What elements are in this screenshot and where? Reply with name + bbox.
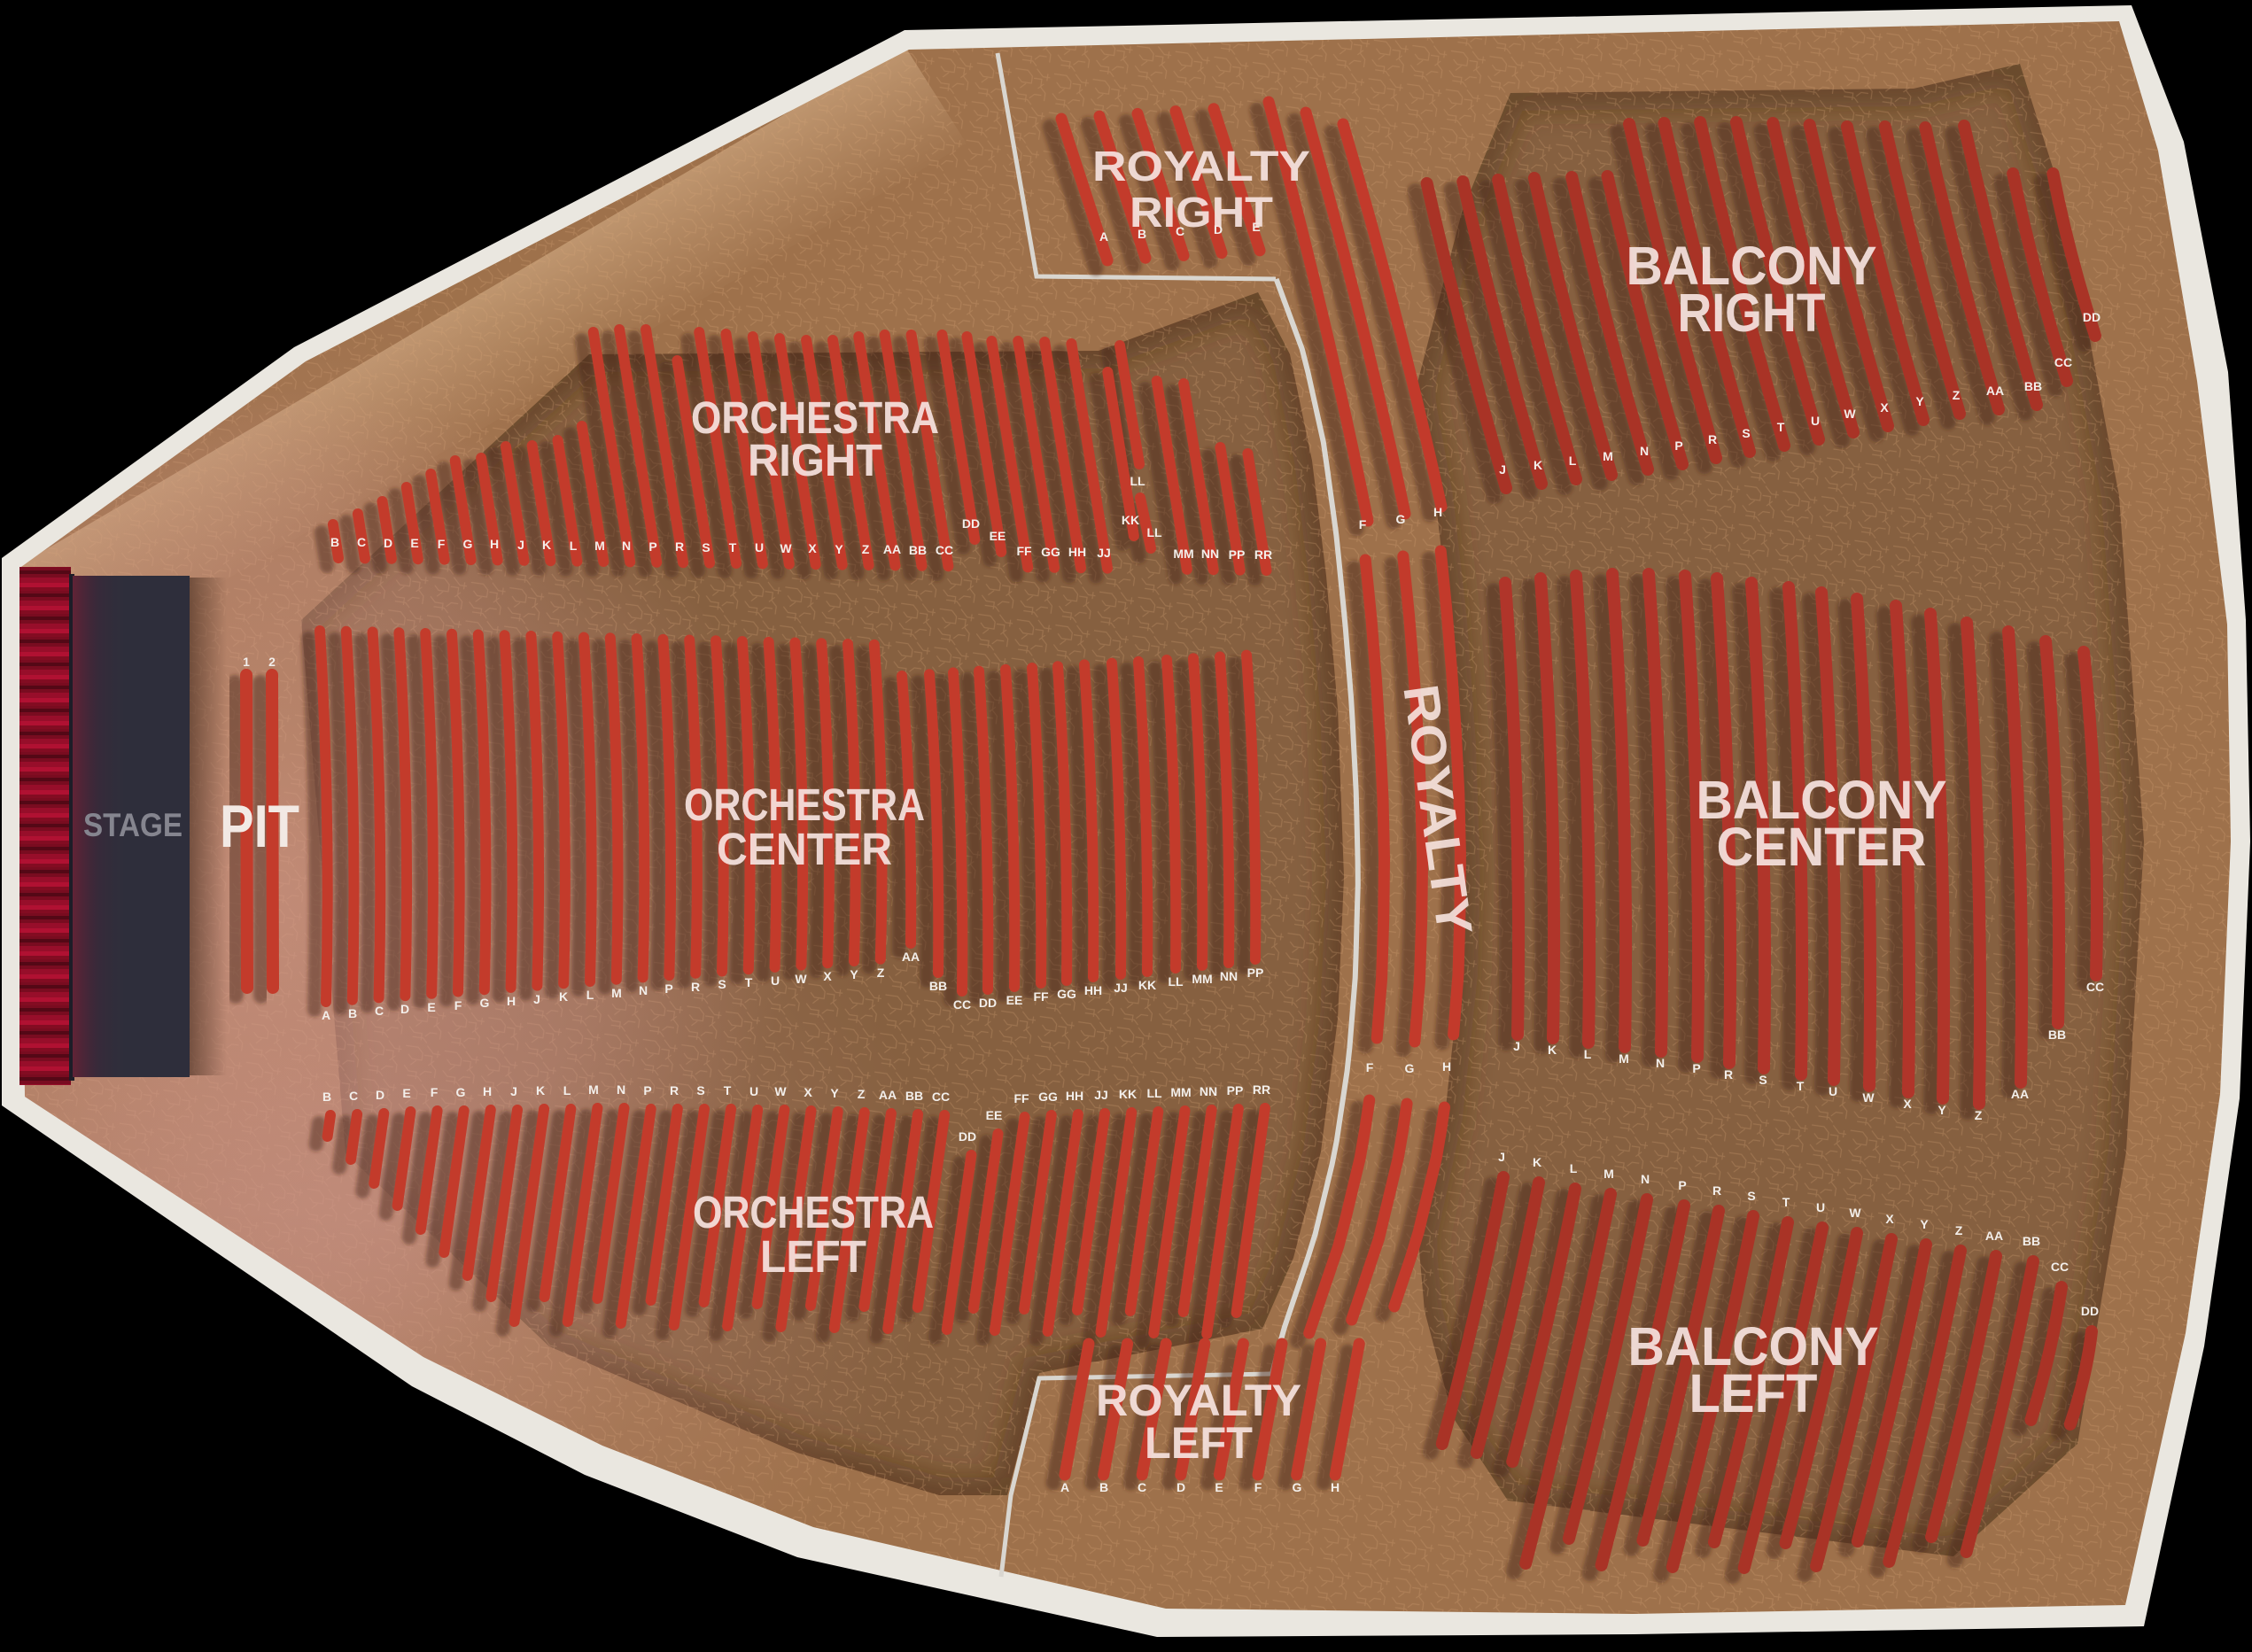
svg-text:ORCHESTRA: ORCHESTRA (693, 1187, 934, 1237)
svg-text:N: N (617, 1082, 625, 1097)
svg-text:RIGHT: RIGHT (1678, 283, 1826, 343)
svg-text:N: N (1641, 1172, 1650, 1186)
svg-text:P: P (1678, 1178, 1686, 1192)
svg-text:G: G (1396, 512, 1406, 526)
svg-text:KK: KK (1122, 513, 1139, 527)
svg-text:T: T (729, 540, 737, 555)
svg-text:R: R (691, 980, 700, 994)
svg-text:FF: FF (1016, 544, 1032, 558)
svg-text:T: T (1782, 1195, 1790, 1209)
svg-text:W: W (1862, 1090, 1875, 1105)
svg-text:K: K (559, 989, 568, 1004)
svg-text:E: E (427, 1000, 435, 1014)
svg-text:A: A (1099, 229, 1108, 244)
svg-text:DD: DD (2081, 1304, 2099, 1318)
svg-text:B: B (330, 535, 339, 549)
svg-text:R: R (675, 539, 684, 554)
svg-text:Z: Z (877, 966, 885, 980)
svg-text:X: X (1880, 400, 1889, 415)
svg-text:F: F (1254, 1480, 1262, 1494)
svg-text:J: J (1513, 1039, 1520, 1053)
svg-text:LEFT: LEFT (1145, 1418, 1253, 1468)
svg-text:T: T (745, 975, 753, 989)
svg-text:GG: GG (1057, 987, 1076, 1001)
svg-text:DD: DD (2083, 310, 2101, 324)
svg-text:J: J (533, 992, 540, 1006)
svg-text:BB: BB (2048, 1028, 2066, 1042)
svg-text:CENTER: CENTER (717, 824, 892, 874)
svg-text:BB: BB (2024, 379, 2042, 393)
svg-text:E: E (410, 536, 418, 550)
svg-text:X: X (804, 1085, 812, 1099)
svg-text:CENTER: CENTER (1717, 817, 1927, 877)
svg-text:B: B (322, 1090, 331, 1104)
svg-text:U: U (755, 540, 764, 555)
svg-text:B: B (348, 1006, 357, 1020)
svg-text:W: W (774, 1084, 787, 1098)
svg-text:MM: MM (1192, 972, 1212, 986)
svg-text:M: M (588, 1082, 599, 1097)
svg-text:H: H (490, 537, 499, 551)
svg-text:R: R (1712, 1183, 1721, 1198)
svg-text:P: P (1692, 1061, 1700, 1075)
svg-text:H: H (1331, 1480, 1340, 1494)
svg-text:H: H (1433, 505, 1442, 519)
svg-text:S: S (718, 977, 726, 991)
svg-text:R: R (670, 1083, 679, 1097)
svg-text:RR: RR (1254, 547, 1272, 562)
svg-text:Z: Z (858, 1087, 866, 1101)
svg-text:U: U (1811, 414, 1820, 428)
svg-text:DD: DD (979, 996, 997, 1010)
svg-text:U: U (749, 1084, 758, 1098)
svg-text:P: P (664, 981, 672, 996)
svg-text:G: G (1405, 1061, 1415, 1075)
svg-text:PIT: PIT (220, 793, 299, 860)
svg-text:RR: RR (1253, 1082, 1270, 1097)
svg-text:U: U (771, 973, 780, 988)
svg-text:P: P (643, 1083, 651, 1097)
svg-text:K: K (1534, 458, 1542, 472)
svg-text:KK: KK (1119, 1087, 1137, 1101)
svg-text:2: 2 (268, 655, 276, 669)
svg-text:AA: AA (1986, 384, 2004, 398)
svg-text:EE: EE (990, 529, 1006, 543)
svg-text:AA: AA (1985, 1229, 2003, 1243)
svg-text:G: G (480, 996, 490, 1010)
svg-text:B: B (1099, 1480, 1108, 1494)
svg-text:L: L (1570, 1161, 1578, 1175)
svg-text:PP: PP (1247, 966, 1264, 980)
svg-text:F: F (1366, 1060, 1374, 1074)
svg-text:AA: AA (902, 950, 920, 964)
svg-text:NN: NN (1201, 547, 1219, 561)
svg-text:A: A (1060, 1480, 1069, 1494)
svg-text:BB: BB (929, 979, 947, 993)
svg-text:HH: HH (1066, 1089, 1083, 1103)
svg-text:D: D (400, 1002, 409, 1016)
svg-text:J: J (1498, 1150, 1505, 1164)
svg-text:PP: PP (1227, 1083, 1244, 1097)
svg-text:D: D (376, 1088, 384, 1102)
svg-text:P: P (1674, 438, 1682, 453)
svg-text:K: K (542, 538, 551, 552)
svg-text:Y: Y (850, 967, 858, 981)
svg-text:AA: AA (2011, 1087, 2029, 1101)
svg-text:H: H (507, 994, 516, 1008)
svg-text:N: N (622, 539, 631, 553)
svg-text:J: J (1499, 462, 1506, 477)
svg-text:JJ: JJ (1114, 981, 1128, 995)
svg-text:HH: HH (1068, 545, 1086, 559)
svg-text:L: L (1569, 454, 1577, 468)
svg-text:M: M (1619, 1051, 1629, 1066)
svg-text:E: E (1215, 1480, 1223, 1494)
svg-text:C: C (375, 1004, 384, 1018)
svg-text:F: F (431, 1085, 439, 1099)
svg-text:T: T (1777, 420, 1785, 434)
svg-text:CC: CC (2051, 1260, 2069, 1274)
svg-text:M: M (1604, 1167, 1614, 1181)
svg-text:AA: AA (879, 1088, 897, 1102)
svg-text:LL: LL (1168, 974, 1184, 989)
svg-text:GG: GG (1041, 545, 1060, 559)
svg-text:CC: CC (2054, 355, 2072, 369)
svg-text:M: M (1603, 449, 1613, 463)
svg-text:P: P (648, 539, 656, 554)
svg-text:EE: EE (1006, 993, 1023, 1007)
svg-text:S: S (1747, 1189, 1755, 1203)
svg-text:KK: KK (1138, 978, 1156, 992)
svg-text:H: H (483, 1084, 492, 1098)
svg-text:Y: Y (835, 542, 843, 556)
svg-text:NN: NN (1200, 1084, 1217, 1098)
svg-text:J: J (517, 538, 524, 552)
svg-text:F: F (454, 998, 462, 1012)
svg-text:CC: CC (953, 997, 971, 1012)
svg-text:ORCHESTRA: ORCHESTRA (684, 779, 925, 830)
svg-text:ROYALTY: ROYALTY (1092, 143, 1310, 190)
svg-text:LEFT: LEFT (760, 1231, 866, 1282)
svg-text:JJ: JJ (1097, 546, 1111, 560)
svg-text:N: N (1656, 1056, 1665, 1070)
svg-text:N: N (1640, 444, 1649, 458)
svg-text:RIGHT: RIGHT (748, 435, 882, 485)
svg-text:R: R (1724, 1067, 1733, 1082)
svg-text:E: E (402, 1086, 410, 1100)
svg-text:HH: HH (1084, 983, 1102, 997)
svg-text:LEFT: LEFT (1689, 1363, 1818, 1423)
svg-text:G: G (456, 1085, 466, 1099)
svg-text:U: U (1829, 1084, 1837, 1098)
svg-text:X: X (1903, 1097, 1912, 1111)
svg-text:L: L (1584, 1047, 1592, 1061)
svg-text:Y: Y (1937, 1103, 1946, 1117)
svg-text:LL: LL (1146, 525, 1162, 539)
svg-text:MM: MM (1170, 1085, 1191, 1099)
svg-text:MM: MM (1173, 547, 1193, 561)
svg-text:RIGHT: RIGHT (1130, 190, 1273, 237)
svg-text:F: F (438, 537, 446, 551)
svg-text:W: W (795, 972, 807, 986)
svg-text:U: U (1816, 1200, 1825, 1214)
svg-text:LL: LL (1130, 474, 1145, 488)
svg-text:X: X (808, 541, 817, 555)
svg-text:FF: FF (1033, 989, 1049, 1004)
svg-text:PP: PP (1229, 547, 1246, 562)
svg-text:D: D (384, 536, 392, 550)
svg-text:Y: Y (1920, 1217, 1929, 1231)
svg-text:G: G (1293, 1480, 1302, 1494)
svg-text:Z: Z (1975, 1108, 1983, 1122)
svg-text:W: W (780, 541, 792, 555)
svg-text:FF: FF (1013, 1091, 1029, 1105)
svg-text:CC: CC (2086, 980, 2104, 994)
svg-text:Y: Y (830, 1086, 839, 1100)
svg-text:C: C (357, 535, 366, 549)
svg-text:DD: DD (959, 1129, 976, 1144)
svg-text:BB: BB (2023, 1234, 2040, 1248)
svg-text:S: S (1742, 426, 1750, 440)
svg-text:M: M (611, 986, 622, 1000)
svg-text:AA: AA (883, 542, 901, 556)
svg-text:STAGE: STAGE (83, 807, 182, 843)
svg-text:S: S (1759, 1073, 1767, 1087)
svg-text:L: L (570, 539, 578, 553)
svg-text:R: R (1708, 432, 1717, 446)
svg-text:K: K (536, 1083, 545, 1097)
svg-text:F: F (1359, 517, 1367, 531)
svg-text:S: S (696, 1083, 704, 1097)
svg-text:K: K (1533, 1155, 1541, 1169)
svg-text:Z: Z (1955, 1223, 1963, 1237)
svg-text:Z: Z (1953, 388, 1961, 402)
svg-text:NN: NN (1220, 969, 1238, 983)
svg-text:X: X (1885, 1212, 1894, 1226)
svg-text:N: N (639, 983, 648, 997)
svg-text:X: X (823, 969, 832, 983)
svg-text:BB: BB (909, 543, 927, 557)
svg-text:W: W (1849, 1206, 1861, 1220)
svg-text:C: C (349, 1089, 358, 1103)
svg-text:K: K (1548, 1043, 1557, 1057)
svg-text:Z: Z (862, 542, 870, 556)
svg-text:BB: BB (905, 1089, 923, 1103)
svg-text:L: L (586, 988, 594, 1002)
svg-text:DD: DD (962, 516, 980, 531)
svg-text:T: T (724, 1083, 732, 1097)
svg-text:LL: LL (1146, 1086, 1162, 1100)
svg-text:G: G (463, 537, 473, 551)
svg-text:H: H (1442, 1059, 1451, 1074)
svg-text:S: S (702, 540, 710, 555)
svg-text:W: W (1844, 407, 1856, 421)
svg-text:CC: CC (936, 543, 953, 557)
svg-text:Y: Y (1915, 394, 1924, 408)
svg-text:EE: EE (986, 1108, 1003, 1122)
svg-text:L: L (563, 1083, 571, 1097)
svg-text:A: A (322, 1008, 330, 1022)
svg-text:JJ: JJ (1094, 1088, 1108, 1102)
svg-text:M: M (594, 539, 605, 553)
svg-text:1: 1 (243, 655, 250, 669)
svg-text:J: J (510, 1084, 517, 1098)
svg-text:CC: CC (932, 1090, 950, 1104)
svg-text:GG: GG (1038, 1090, 1058, 1104)
svg-text:T: T (1797, 1079, 1805, 1093)
svg-text:D: D (1176, 1480, 1185, 1494)
svg-text:C: C (1138, 1480, 1146, 1494)
